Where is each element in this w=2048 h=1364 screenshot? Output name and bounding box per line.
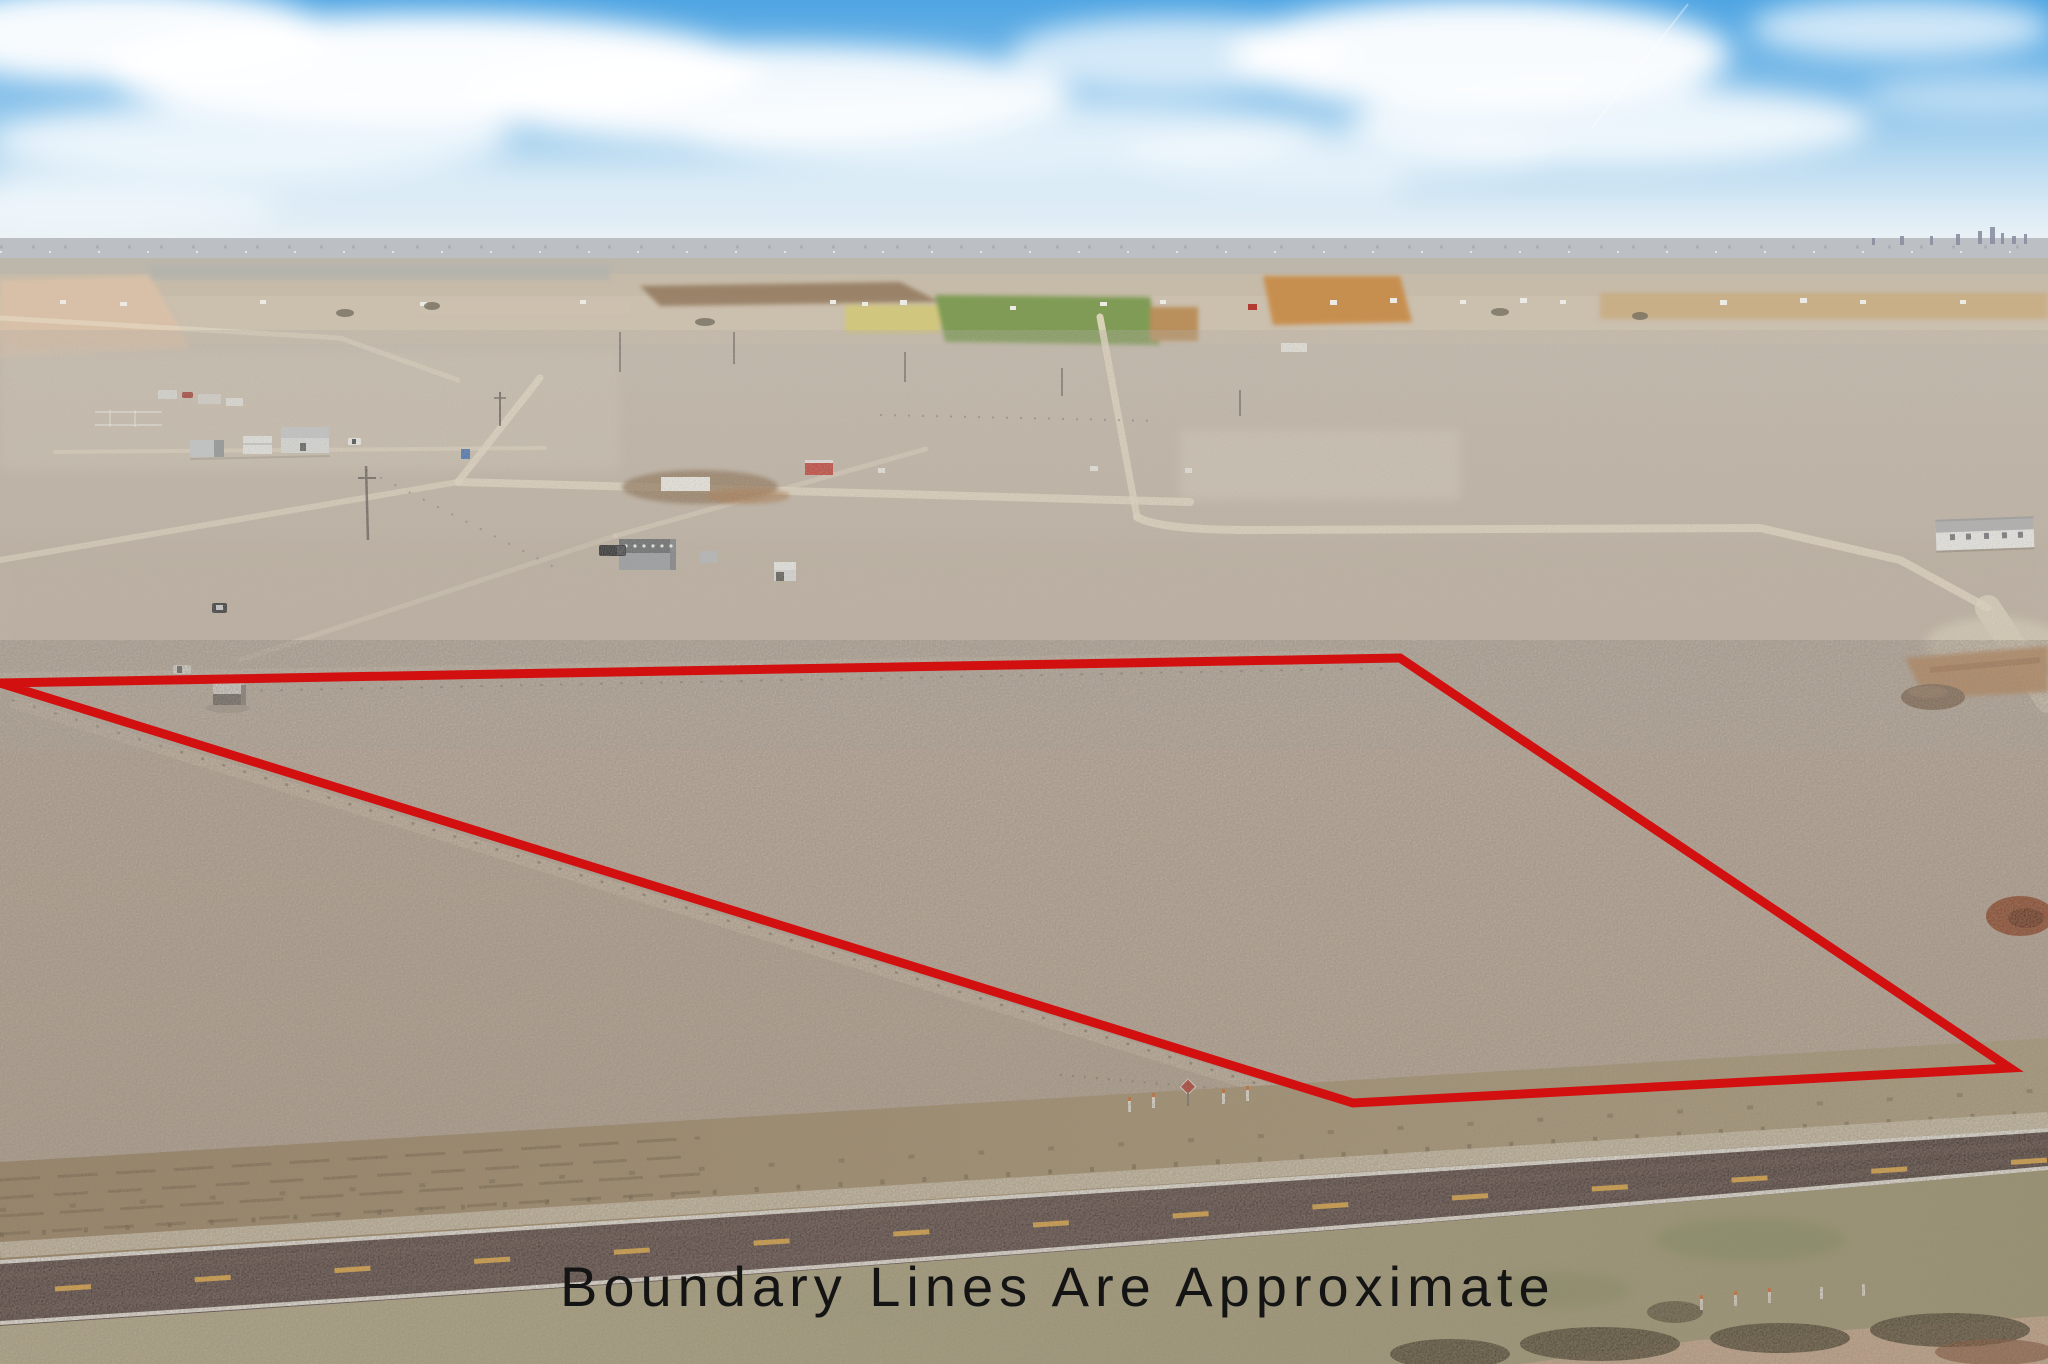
field-orange-right: [1600, 293, 2048, 319]
landscape: [0, 0, 2048, 1364]
aerial-listing-photo: Boundary Lines Are Approximate: [0, 0, 2048, 1364]
distant-red-truck: [1248, 304, 1257, 310]
distant-strip-gray: [150, 264, 610, 280]
caption: Boundary Lines Are Approximate: [560, 1254, 1556, 1319]
sky: [0, 0, 2048, 250]
field-orange: [1263, 276, 1412, 325]
field-brown: [640, 282, 940, 306]
field-yellow-green: [845, 305, 940, 333]
